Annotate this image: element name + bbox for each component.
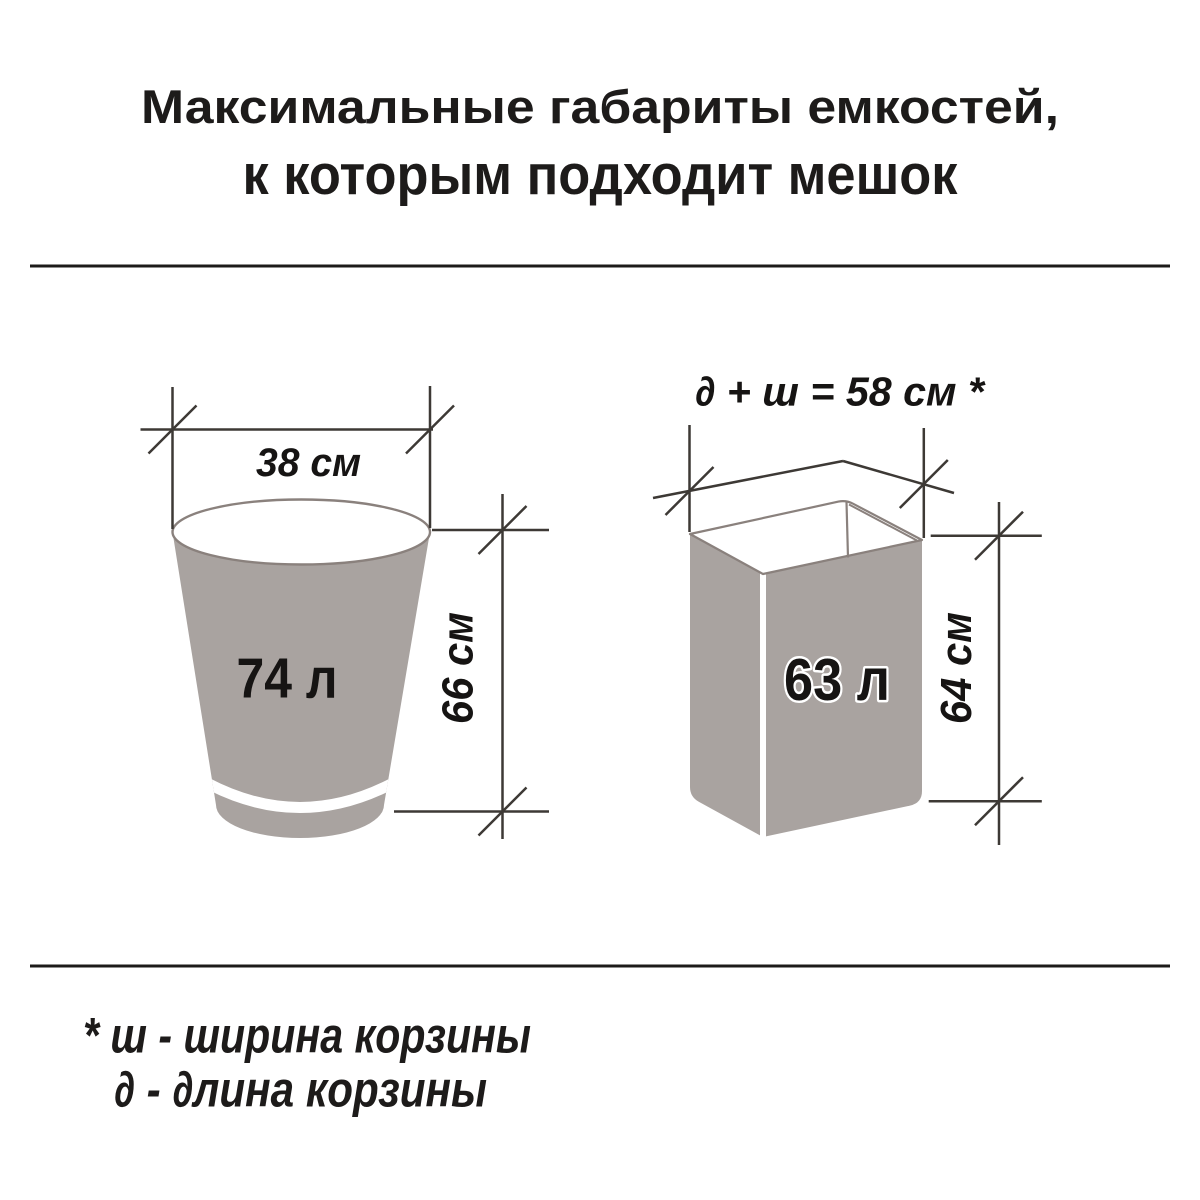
svg-text:63 л: 63 л xyxy=(784,646,890,713)
svg-text:∂ + ш = 58 см *: ∂ + ш = 58 см * xyxy=(695,369,986,415)
svg-text:к которым подходит мешок: к которым подходит мешок xyxy=(243,143,958,207)
svg-text:74 л: 74 л xyxy=(237,647,338,711)
svg-text:38 см: 38 см xyxy=(256,441,361,485)
svg-text:66 см: 66 см xyxy=(434,612,483,724)
svg-text:Максимальные габариты емкостей: Максимальные габариты емкостей, xyxy=(141,80,1059,133)
svg-text:∂ - ∂лина корзины: ∂ - ∂лина корзины xyxy=(114,1062,487,1118)
svg-text:* ш - ширина корзины: * ш - ширина корзины xyxy=(83,1008,531,1064)
svg-text:64 см: 64 см xyxy=(932,612,981,724)
